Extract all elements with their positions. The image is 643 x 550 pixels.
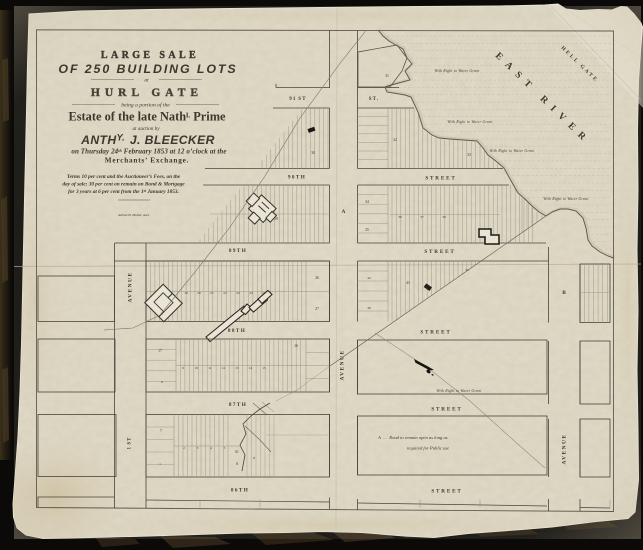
svg-text:STREET: STREET (425, 176, 456, 182)
svg-text:9: 9 (182, 366, 184, 370)
svg-text:35: 35 (365, 228, 369, 232)
svg-text:30: 30 (311, 151, 315, 155)
svg-text:13: 13 (235, 366, 239, 370)
svg-text:16: 16 (294, 344, 298, 348)
svg-text:11: 11 (208, 366, 212, 370)
svg-text:STREET: STREET (431, 407, 462, 413)
svg-text:at: at (144, 78, 149, 84)
svg-text:20: 20 (197, 291, 201, 295)
svg-text:1 ST: 1 ST (128, 436, 133, 449)
svg-text:for 3 years at 6 per cent from: for 3 years at 6 per cent from the 1st J… (68, 189, 179, 195)
svg-text:36: 36 (398, 215, 402, 219)
svg-text:12: 12 (222, 366, 226, 370)
svg-text:14: 14 (249, 366, 253, 370)
svg-text:at auction by: at auction by (132, 126, 160, 132)
svg-text:ST.: ST. (369, 97, 380, 102)
svg-text:STREET: STREET (431, 489, 462, 495)
svg-text:STREET: STREET (424, 249, 455, 255)
svg-text:AVENUE: AVENUE (340, 349, 346, 380)
svg-text:LARGE SALE: LARGE SALE (101, 50, 199, 61)
svg-text:7: 7 (160, 429, 162, 433)
svg-text:42: 42 (367, 276, 371, 280)
svg-text:required for Public use: required for Public use (407, 446, 449, 451)
svg-text:90TH: 90TH (288, 175, 306, 181)
svg-text:B: B (562, 290, 566, 296)
svg-text:OF 250 BUILDING LOTS: OF 250 BUILDING LOTS (58, 62, 237, 76)
svg-text:34: 34 (365, 200, 369, 204)
svg-text:3: 3 (197, 446, 199, 450)
svg-text:88TH: 88TH (228, 328, 246, 334)
svg-text:With Right to Water Grant: With Right to Water Grant (436, 389, 482, 393)
svg-text:27: 27 (315, 307, 319, 311)
svg-text:HURL GATE: HURL GATE (91, 87, 203, 99)
svg-text:33: 33 (467, 153, 471, 157)
svg-text:2: 2 (183, 446, 185, 450)
svg-text:AVENUE: AVENUE (562, 433, 568, 464)
svg-text:Estate of the late Nathl. Prim: Estate of the late Nathl. Prime (68, 110, 226, 124)
svg-text:10: 10 (195, 366, 199, 370)
svg-text:89TH: 89TH (229, 248, 247, 254)
svg-text:With Right to Water Grant: With Right to Water Grant (447, 120, 493, 124)
svg-text:38: 38 (442, 215, 446, 219)
svg-text:STREET: STREET (420, 330, 451, 336)
svg-text:32: 32 (393, 138, 397, 142)
svg-text:86TH: 86TH (231, 488, 249, 494)
svg-text:24: 24 (249, 291, 253, 295)
svg-text:Terms 10 per cent and the Auc: Terms 10 per cent and the Auctioneer’s F… (67, 174, 181, 180)
svg-text:4: 4 (210, 446, 212, 450)
svg-text:With Right to Water Grant: With Right to Water Grant (489, 149, 535, 153)
svg-text:21: 21 (210, 291, 214, 295)
svg-text:22: 22 (223, 291, 227, 295)
svg-text:19: 19 (184, 291, 188, 295)
svg-text:8: 8 (161, 380, 163, 384)
svg-text:40: 40 (367, 306, 371, 310)
svg-text:17: 17 (158, 349, 162, 353)
svg-text:61: 61 (235, 450, 239, 454)
svg-text:being a portion of the: being a portion of the (121, 102, 170, 109)
svg-text:AVENUE: AVENUE (128, 271, 134, 302)
svg-text:87TH: 87TH (229, 402, 247, 408)
svg-text:With Right to Water Grant: With Right to Water Grant (434, 69, 480, 73)
svg-text:Merchants’ Exchange.: Merchants’ Exchange. (105, 157, 189, 165)
svg-text:ANTHY. J. BLEECKER: ANTHY. J. BLEECKER (80, 133, 215, 148)
svg-text:5: 5 (224, 446, 226, 450)
svg-text:day of sale; 30 per cent on re: day of sale; 30 per cent on remain on Bo… (62, 182, 185, 188)
svg-text:15: 15 (262, 366, 266, 370)
svg-text:31: 31 (385, 74, 389, 78)
svg-text:23: 23 (236, 291, 240, 295)
svg-text:26: 26 (315, 276, 319, 280)
svg-text:41: 41 (406, 281, 410, 285)
svg-text:91 ST: 91 ST (289, 97, 307, 102)
svg-text:With Right to Water Grant: With Right to Water Grant (543, 197, 589, 201)
svg-text:29: 29 (274, 217, 278, 221)
svg-text:on Thursday 24th February 1853: on Thursday 24th February 1853 at 12 o’c… (71, 148, 226, 156)
svg-text:A: A (342, 209, 346, 215)
svg-text:37: 37 (420, 215, 424, 219)
svg-text:8: 8 (253, 456, 255, 460)
svg-text:A: A (236, 461, 239, 466)
svg-text:1: 1 (159, 462, 161, 466)
